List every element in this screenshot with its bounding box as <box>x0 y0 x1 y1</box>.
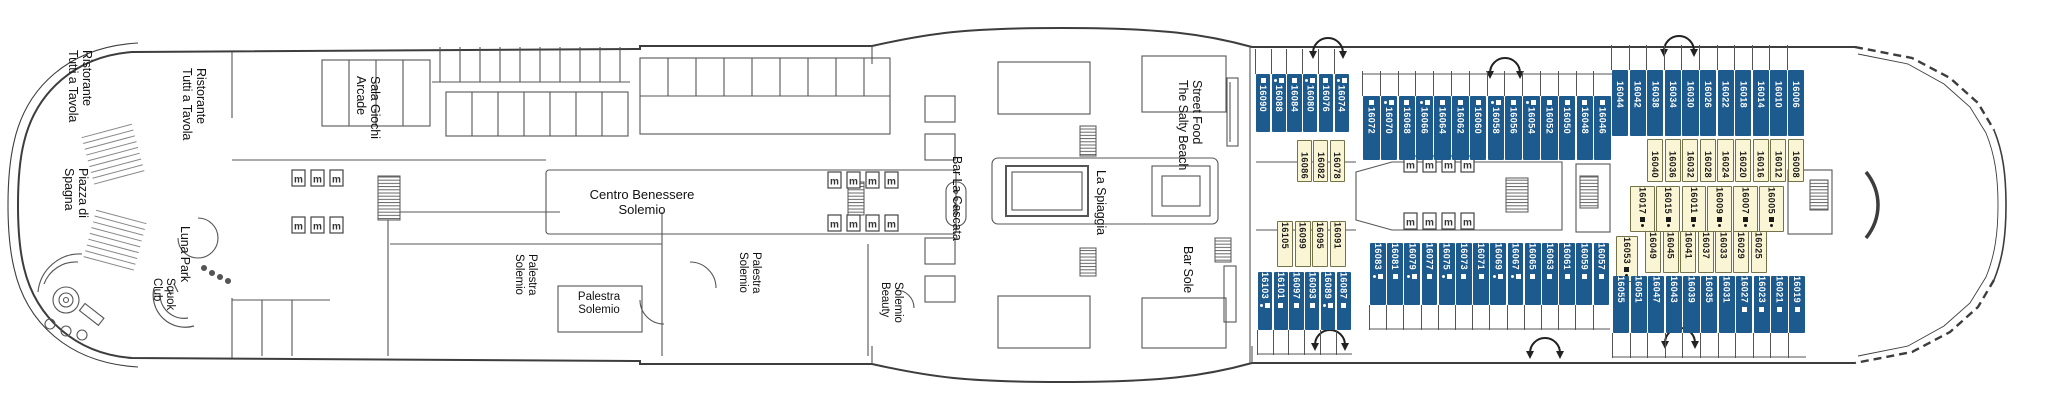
berth-square-icon <box>1279 78 1284 83</box>
berth-square-icon <box>1511 100 1516 105</box>
cabin-number: 16082 <box>1316 152 1326 179</box>
cabin-number: 16037 <box>1701 232 1711 259</box>
cabin-number: 16072 <box>1366 107 1376 134</box>
berth-square-icon <box>1777 307 1782 312</box>
cabin-16006[interactable]: 16006 <box>1788 70 1804 136</box>
cabin-feature-icons <box>1691 217 1696 227</box>
berth-square-icon <box>1624 267 1629 272</box>
berth-square-icon <box>1530 274 1535 279</box>
berth-dot-icon <box>1420 101 1423 104</box>
cabin-16017[interactable]: 16017 <box>1630 186 1655 232</box>
cabin-number: 16053 <box>1622 237 1632 264</box>
berth-dot-icon <box>1407 275 1410 278</box>
cabin-feature-icons <box>1759 305 1764 313</box>
cabin-number: 16076 <box>1321 85 1331 112</box>
cabin-feature-icons <box>1341 301 1346 309</box>
berth-square-icon <box>1476 100 1481 105</box>
cabin-16048[interactable]: 16048 <box>1577 96 1594 160</box>
cabin-feature-icons <box>1310 301 1315 309</box>
cabin-number: 16093 <box>1307 272 1317 299</box>
cabin-number: 16105 <box>1280 222 1290 249</box>
cabin-number: 16020 <box>1738 151 1748 178</box>
cabin-number: 16019 <box>1792 276 1802 303</box>
cabin-16058[interactable]: 16058 <box>1488 96 1505 160</box>
cabin-number: 16095 <box>1315 222 1325 249</box>
cabin-16099[interactable]: 16099 <box>1295 221 1311 267</box>
cabin-16063[interactable]: 16063 <box>1542 243 1558 305</box>
cabin-16039[interactable]: 16039 <box>1683 276 1699 333</box>
cabin-16105[interactable]: 16105 <box>1277 221 1293 267</box>
cabin-16088[interactable]: 16088 <box>1272 74 1286 132</box>
cabin-number: 16014 <box>1756 81 1766 108</box>
cabin-16064[interactable]: 16064 <box>1434 96 1451 160</box>
cabin-number: 16025 <box>1754 232 1764 259</box>
berth-square-icon <box>1640 217 1645 222</box>
berth-square-icon <box>1461 274 1466 279</box>
cabin-number: 16032 <box>1685 151 1695 178</box>
cabin-16081[interactable]: 16081 <box>1387 243 1403 305</box>
cabin-number: 16065 <box>1528 243 1538 270</box>
cabin-16075[interactable]: 16075 <box>1439 243 1455 305</box>
cabin-16030[interactable]: 16030 <box>1682 70 1698 136</box>
cabin-number: 16071 <box>1476 243 1486 270</box>
cabin-number: 16035 <box>1704 276 1714 303</box>
berth-square-icon <box>1743 217 1748 222</box>
cabin-16065[interactable]: 16065 <box>1525 243 1541 305</box>
berth-dot-icon <box>1493 275 1496 278</box>
berth-dot-icon <box>1491 101 1494 104</box>
berth-dot-icon <box>1305 79 1308 82</box>
cabin-feature-icons <box>1476 98 1481 106</box>
cabin-16050[interactable]: 16050 <box>1559 96 1576 160</box>
cabin-feature-icons <box>1599 272 1604 280</box>
cabin-16059[interactable]: 16059 <box>1576 243 1592 305</box>
berth-dot-icon <box>1511 275 1514 278</box>
cabin-number: 16091 <box>1333 222 1343 249</box>
berth-square-icon <box>1547 100 1552 105</box>
cabin-number: 16099 <box>1298 222 1308 249</box>
cabin-number: 16077 <box>1425 243 1435 270</box>
cabin-number: 16097 <box>1292 272 1302 299</box>
cabin-feature-icons <box>1369 98 1374 106</box>
cabin-number: 16006 <box>1791 81 1801 108</box>
berth-square-icon <box>1769 217 1774 222</box>
cabin-number: 16034 <box>1668 81 1678 108</box>
berth-dot-icon <box>1373 275 1376 278</box>
cabin-16041[interactable]: 16041 <box>1680 231 1696 273</box>
cabin-16089[interactable]: 16089 <box>1321 272 1335 330</box>
cabin-16056[interactable]: 16056 <box>1505 96 1522 160</box>
cabin-16051[interactable]: 16051 <box>1631 276 1647 333</box>
cabin-feature-icons <box>1440 98 1445 106</box>
berth-square-icon <box>1278 303 1283 308</box>
cabin-number: 16027 <box>1739 276 1749 303</box>
cabin-16091[interactable]: 16091 <box>1330 221 1346 267</box>
cabin-16086[interactable]: 16086 <box>1297 140 1312 182</box>
berth-square-icon <box>1328 303 1333 308</box>
cabin-number: 16042 <box>1633 81 1643 108</box>
cabin-number: 16046 <box>1598 107 1608 134</box>
berth-square-icon <box>1582 100 1587 105</box>
cabin-16019[interactable]: 16019 <box>1789 276 1805 333</box>
berth-square-icon <box>1310 303 1315 308</box>
cabin-number: 16045 <box>1666 232 1676 259</box>
cabin-16036[interactable]: 16036 <box>1665 139 1681 182</box>
cabin-16033[interactable]: 16033 <box>1715 231 1731 273</box>
cabin-feature-icons <box>1337 76 1347 84</box>
cabin-16084[interactable]: 16084 <box>1287 74 1301 132</box>
cabin-16010[interactable]: 16010 <box>1770 70 1786 136</box>
berth-dot-icon <box>1384 101 1387 104</box>
cabin-feature-icons <box>1530 272 1535 280</box>
cabin-feature-icons <box>1427 272 1432 280</box>
cabin-feature-icons <box>1666 217 1671 227</box>
cabin-number: 16018 <box>1738 81 1748 108</box>
cabin-number: 16058 <box>1491 107 1501 134</box>
berth-square-icon <box>1323 78 1328 83</box>
cabin-16082[interactable]: 16082 <box>1313 140 1328 182</box>
cabin-number: 16079 <box>1407 243 1417 270</box>
cabin-16073[interactable]: 16073 <box>1456 243 1472 305</box>
cabin-16040[interactable]: 16040 <box>1647 139 1663 182</box>
cabin-feature-icons <box>1640 217 1645 227</box>
cabin-number: 16039 <box>1687 276 1697 303</box>
berth-square-icon <box>1427 274 1432 279</box>
cabin-16020[interactable]: 16020 <box>1735 139 1751 182</box>
cabin-number: 16063 <box>1545 243 1555 270</box>
berth-square-icon <box>1404 100 1409 105</box>
berth-dot-icon <box>1274 79 1277 82</box>
berth-square-icon <box>1447 274 1452 279</box>
cabin-16015[interactable]: 16015 <box>1656 186 1681 232</box>
cabin-feature-icons <box>1479 272 1484 280</box>
berth-square-icon <box>1795 307 1800 312</box>
cabin-16023[interactable]: 16023 <box>1754 276 1770 333</box>
berth-square-icon <box>1292 78 1297 83</box>
berth-dot-icon <box>1526 101 1529 104</box>
cabin-number: 16060 <box>1473 107 1483 134</box>
cabin-16012[interactable]: 16012 <box>1770 139 1786 182</box>
cabin-number: 16011 <box>1689 187 1699 214</box>
cabin-number: 16010 <box>1774 81 1784 108</box>
cabin-number: 16040 <box>1650 151 1660 178</box>
cabin-number: 16057 <box>1597 243 1607 270</box>
cabin-number: 16054 <box>1526 107 1536 134</box>
cabin-feature-icons <box>1547 98 1552 106</box>
cabin-number: 16050 <box>1562 107 1572 134</box>
cabin-feature-icons <box>1292 76 1297 84</box>
berth-square-icon <box>1341 303 1346 308</box>
cabin-feature-icons <box>1278 301 1283 309</box>
cabin-16029[interactable]: 16029 <box>1733 231 1749 273</box>
cabin-number: 16051 <box>1634 276 1644 303</box>
cabin-feature-icons <box>1769 217 1774 227</box>
berth-square-icon <box>1479 274 1484 279</box>
cabin-16095[interactable]: 16095 <box>1312 221 1328 267</box>
cabin-16046[interactable]: 16046 <box>1594 96 1611 160</box>
cabin-16057[interactable]: 16057 <box>1594 243 1610 305</box>
cabin-number: 16015 <box>1663 187 1673 214</box>
cabin-number: 16081 <box>1390 243 1400 270</box>
cabin-number: 16073 <box>1459 243 1469 270</box>
cabin-number: 16017 <box>1637 187 1647 214</box>
cabin-number: 16090 <box>1258 85 1268 112</box>
berth-dot-icon <box>1337 79 1340 82</box>
cabin-16009[interactable]: 16009 <box>1707 186 1732 232</box>
cabin-number: 16009 <box>1715 187 1725 214</box>
cabin-feature-icons <box>1323 76 1328 84</box>
cabin-number: 16074 <box>1337 85 1347 112</box>
cabin-number: 16064 <box>1437 107 1447 134</box>
cabin-feature-icons <box>1323 301 1333 309</box>
cabin-16022[interactable]: 16022 <box>1718 70 1734 136</box>
berth-dot-icon <box>1667 224 1670 227</box>
cabin-feature-icons <box>1458 98 1463 106</box>
cabin-16060[interactable]: 16060 <box>1470 96 1487 160</box>
cabin-16035[interactable]: 16035 <box>1701 276 1717 333</box>
cabin-16031[interactable]: 16031 <box>1719 276 1735 333</box>
cabin-16097[interactable]: 16097 <box>1289 272 1303 330</box>
berth-dot-icon <box>1744 224 1747 227</box>
cabin-16074[interactable]: 16074 <box>1335 74 1349 132</box>
cabin-16071[interactable]: 16071 <box>1473 243 1489 305</box>
cabin-16037[interactable]: 16037 <box>1698 231 1714 273</box>
cabin-number: 16028 <box>1703 151 1713 178</box>
cabin-16034[interactable]: 16034 <box>1665 70 1681 136</box>
cabin-number: 16030 <box>1686 81 1696 108</box>
cabin-number: 16026 <box>1703 81 1713 108</box>
cabin-16083[interactable]: 16083 <box>1370 243 1386 305</box>
cabin-feature-icons <box>1511 272 1521 280</box>
cabin-16007[interactable]: 16007 <box>1733 186 1758 232</box>
cabin-number: 16070 <box>1384 107 1394 134</box>
cabin-number: 16036 <box>1668 151 1678 178</box>
cabin-feature-icons <box>1493 272 1503 280</box>
cabin-16011[interactable]: 16011 <box>1682 186 1707 232</box>
cabin-16024[interactable]: 16024 <box>1717 139 1733 182</box>
cabin-feature-icons <box>1777 305 1782 313</box>
cabin-16069[interactable]: 16069 <box>1490 243 1506 305</box>
berth-square-icon <box>1531 100 1536 105</box>
cabin-number: 16031 <box>1722 276 1732 303</box>
berth-square-icon <box>1516 274 1521 279</box>
berth-square-icon <box>1547 274 1552 279</box>
berth-square-icon <box>1600 100 1605 105</box>
cabin-number: 16007 <box>1740 187 1750 214</box>
cabin-16025[interactable]: 16025 <box>1751 231 1767 273</box>
cabin-feature-icons <box>1491 98 1501 106</box>
deck-plan: mmmmmmmmmmmmmmmmmmmmmm 16090160881608416… <box>0 0 2048 409</box>
cabin-feature-icons <box>1294 301 1299 309</box>
berth-dot-icon <box>1260 304 1263 307</box>
berth-square-icon <box>1294 303 1299 308</box>
cabin-16079[interactable]: 16079 <box>1404 243 1420 305</box>
cabin-feature-icons <box>1795 305 1800 313</box>
cabin-16061[interactable]: 16061 <box>1559 243 1575 305</box>
cabin-16043[interactable]: 16043 <box>1666 276 1682 333</box>
cabin-number: 16008 <box>1791 151 1801 178</box>
cabin-16066[interactable]: 16066 <box>1416 96 1433 160</box>
cabin-number: 16062 <box>1455 107 1465 134</box>
cabin-number: 16101 <box>1276 272 1286 299</box>
cabin-16038[interactable]: 16038 <box>1647 70 1663 136</box>
cabin-16042[interactable]: 16042 <box>1630 70 1646 136</box>
cabin-number: 16038 <box>1650 81 1660 108</box>
cabin-feature-icons <box>1442 272 1452 280</box>
cabin-number: 16080 <box>1305 85 1315 112</box>
cabin-number: 16055 <box>1616 276 1626 303</box>
berth-dot-icon <box>1692 224 1695 227</box>
cabin-number: 16056 <box>1509 107 1519 134</box>
cabin-16103[interactable]: 16103 <box>1258 272 1272 330</box>
cabin-number: 16044 <box>1615 81 1625 108</box>
cabin-number: 16052 <box>1544 107 1554 134</box>
cabin-feature-icons <box>1511 98 1516 106</box>
cabin-16070[interactable]: 16070 <box>1381 96 1398 160</box>
berth-square-icon <box>1378 274 1383 279</box>
cabin-16054[interactable]: 16054 <box>1523 96 1540 160</box>
cabin-feature-icons <box>1547 272 1552 280</box>
berth-dot-icon <box>1323 304 1326 307</box>
cabin-feature-icons <box>1565 272 1570 280</box>
berth-square-icon <box>1458 100 1463 105</box>
cabin-feature-icons <box>1565 98 1570 106</box>
cabin-16008[interactable]: 16008 <box>1788 139 1804 182</box>
cabin-number: 16048 <box>1580 107 1590 134</box>
cabin-16080[interactable]: 16080 <box>1303 74 1317 132</box>
cabin-number: 16005 <box>1766 187 1776 214</box>
cabin-number: 16033 <box>1719 232 1729 259</box>
cabin-number: 16067 <box>1511 243 1521 270</box>
cabin-number: 16083 <box>1373 243 1383 270</box>
cabin-16005[interactable]: 16005 <box>1759 186 1784 232</box>
cabin-16076[interactable]: 16076 <box>1319 74 1333 132</box>
cabin-16093[interactable]: 16093 <box>1305 272 1319 330</box>
berth-square-icon <box>1742 307 1747 312</box>
berth-dot-icon <box>1641 224 1644 227</box>
cabin-16018[interactable]: 16018 <box>1735 70 1751 136</box>
cabin-number: 16024 <box>1721 151 1731 178</box>
cabin-feature-icons <box>1274 76 1284 84</box>
cabin-number: 16087 <box>1339 272 1349 299</box>
berth-square-icon <box>1265 303 1270 308</box>
cabin-16067[interactable]: 16067 <box>1508 243 1524 305</box>
cabin-feature-icons <box>1305 76 1315 84</box>
cabin-feature-icons <box>1393 272 1398 280</box>
berth-square-icon <box>1582 274 1587 279</box>
cabin-16087[interactable]: 16087 <box>1337 272 1351 330</box>
cabin-feature-icons <box>1461 272 1466 280</box>
cabin-16028[interactable]: 16028 <box>1700 139 1716 182</box>
cabin-16047[interactable]: 16047 <box>1648 276 1664 333</box>
cabin-16016[interactable]: 16016 <box>1753 139 1769 182</box>
cabin-16021[interactable]: 16021 <box>1771 276 1787 333</box>
berth-square-icon <box>1565 100 1570 105</box>
cabin-number: 16022 <box>1721 81 1731 108</box>
cabin-16026[interactable]: 16026 <box>1700 70 1716 136</box>
cabin-number: 16047 <box>1651 276 1661 303</box>
cabin-16044[interactable]: 16044 <box>1612 70 1628 136</box>
berth-dot-icon <box>1442 275 1445 278</box>
cabin-feature-icons <box>1743 217 1748 227</box>
berth-square-icon <box>1342 78 1347 83</box>
berth-square-icon <box>1666 217 1671 222</box>
cabin-feature-icons <box>1717 217 1722 227</box>
cabin-number: 16061 <box>1562 243 1572 270</box>
cabin-feature-icons <box>1600 98 1605 106</box>
cabin-feature-icons <box>1404 98 1409 106</box>
cabin-16055[interactable]: 16055 <box>1613 276 1629 333</box>
berth-dot-icon <box>1770 224 1773 227</box>
berth-square-icon <box>1565 274 1570 279</box>
cabin-16068[interactable]: 16068 <box>1399 96 1416 160</box>
cabin-number: 16059 <box>1579 243 1589 270</box>
cabin-number: 16049 <box>1648 232 1658 259</box>
berth-square-icon <box>1599 274 1604 279</box>
berth-square-icon <box>1393 274 1398 279</box>
berth-square-icon <box>1425 100 1430 105</box>
berth-square-icon <box>1691 217 1696 222</box>
cabin-feature-icons <box>1582 272 1587 280</box>
cabin-feature-icons <box>1582 98 1587 106</box>
berth-square-icon <box>1412 274 1417 279</box>
cabin-16062[interactable]: 16062 <box>1452 96 1469 160</box>
cabin-layer: 1609016088160841608016076160741607216070… <box>0 0 2048 409</box>
berth-square-icon <box>1389 100 1394 105</box>
cabin-number: 16075 <box>1442 243 1452 270</box>
cabin-number: 16041 <box>1683 232 1693 259</box>
cabin-feature-icons <box>1260 301 1270 309</box>
cabin-16052[interactable]: 16052 <box>1541 96 1558 160</box>
cabin-16078[interactable]: 16078 <box>1330 140 1345 182</box>
berth-square-icon <box>1369 100 1374 105</box>
berth-dot-icon <box>1718 224 1721 227</box>
cabin-feature-icons <box>1742 305 1747 313</box>
cabin-number: 16088 <box>1274 85 1284 112</box>
cabin-16072[interactable]: 16072 <box>1363 96 1380 160</box>
berth-square-icon <box>1717 217 1722 222</box>
cabin-number: 16021 <box>1775 276 1785 303</box>
cabin-feature-icons <box>1407 272 1417 280</box>
cabin-number: 16066 <box>1420 107 1430 134</box>
cabin-number: 16069 <box>1493 243 1503 270</box>
berth-square-icon <box>1261 78 1266 83</box>
berth-square-icon <box>1498 274 1503 279</box>
cabin-16077[interactable]: 16077 <box>1422 243 1438 305</box>
cabin-16049[interactable]: 16049 <box>1645 231 1661 273</box>
cabin-16090[interactable]: 16090 <box>1256 74 1270 132</box>
cabin-feature-icons <box>1384 98 1394 106</box>
cabin-16045[interactable]: 16045 <box>1663 231 1679 273</box>
cabin-number: 16086 <box>1300 152 1310 179</box>
cabin-number: 16103 <box>1260 272 1270 299</box>
cabin-number: 16023 <box>1757 276 1767 303</box>
berth-square-icon <box>1440 100 1445 105</box>
cabin-number: 16078 <box>1332 152 1342 179</box>
cabin-16027[interactable]: 16027 <box>1736 276 1752 333</box>
cabin-number: 16084 <box>1290 85 1300 112</box>
cabin-number: 16016 <box>1756 151 1766 178</box>
berth-square-icon <box>1310 78 1315 83</box>
cabin-16101[interactable]: 16101 <box>1274 272 1288 330</box>
cabin-number: 16043 <box>1669 276 1679 303</box>
cabin-feature-icons <box>1526 98 1536 106</box>
cabin-number: 16012 <box>1773 151 1783 178</box>
cabin-feature-icons <box>1373 272 1383 280</box>
cabin-number: 16068 <box>1402 107 1412 134</box>
cabin-16014[interactable]: 16014 <box>1753 70 1769 136</box>
cabin-16032[interactable]: 16032 <box>1682 139 1698 182</box>
